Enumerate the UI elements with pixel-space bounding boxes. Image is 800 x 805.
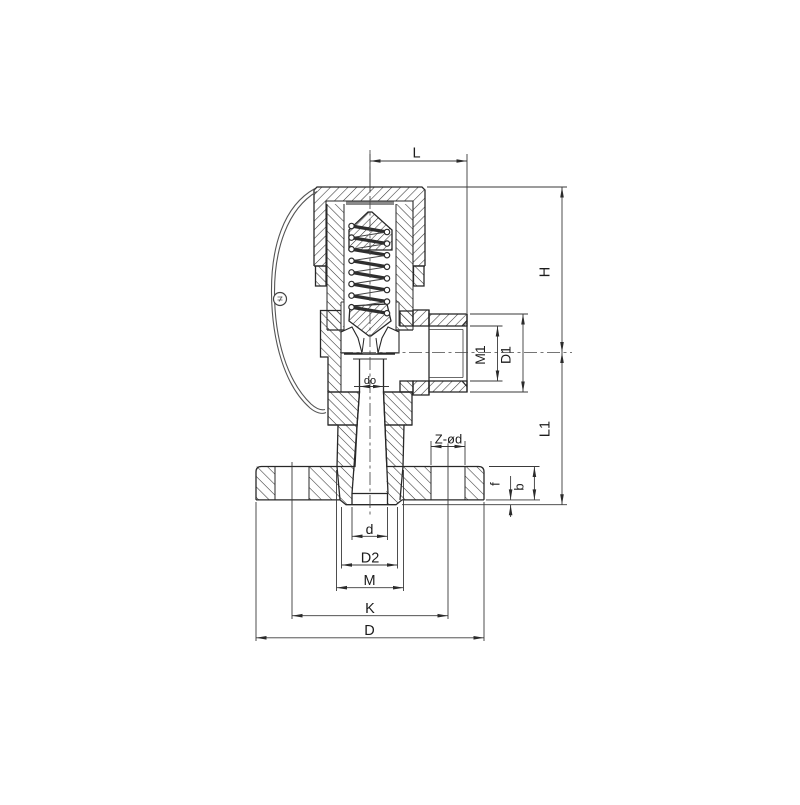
svg-text:L1: L1 (538, 421, 554, 437)
svg-text:b: b (512, 483, 527, 490)
svg-text:M: M (363, 573, 375, 589)
svg-text:D2: D2 (361, 551, 380, 567)
svg-text:f: f (488, 482, 503, 486)
svg-text:do: do (364, 375, 376, 387)
svg-text:d: d (366, 521, 374, 537)
svg-text:Z-ød: Z-ød (435, 432, 462, 447)
svg-text:H: H (538, 267, 554, 277)
svg-text:L: L (412, 146, 420, 162)
svg-text:D1: D1 (498, 346, 514, 364)
svg-text:K: K (365, 601, 375, 617)
svg-text:D: D (364, 623, 374, 639)
svg-text:M1: M1 (472, 345, 488, 365)
